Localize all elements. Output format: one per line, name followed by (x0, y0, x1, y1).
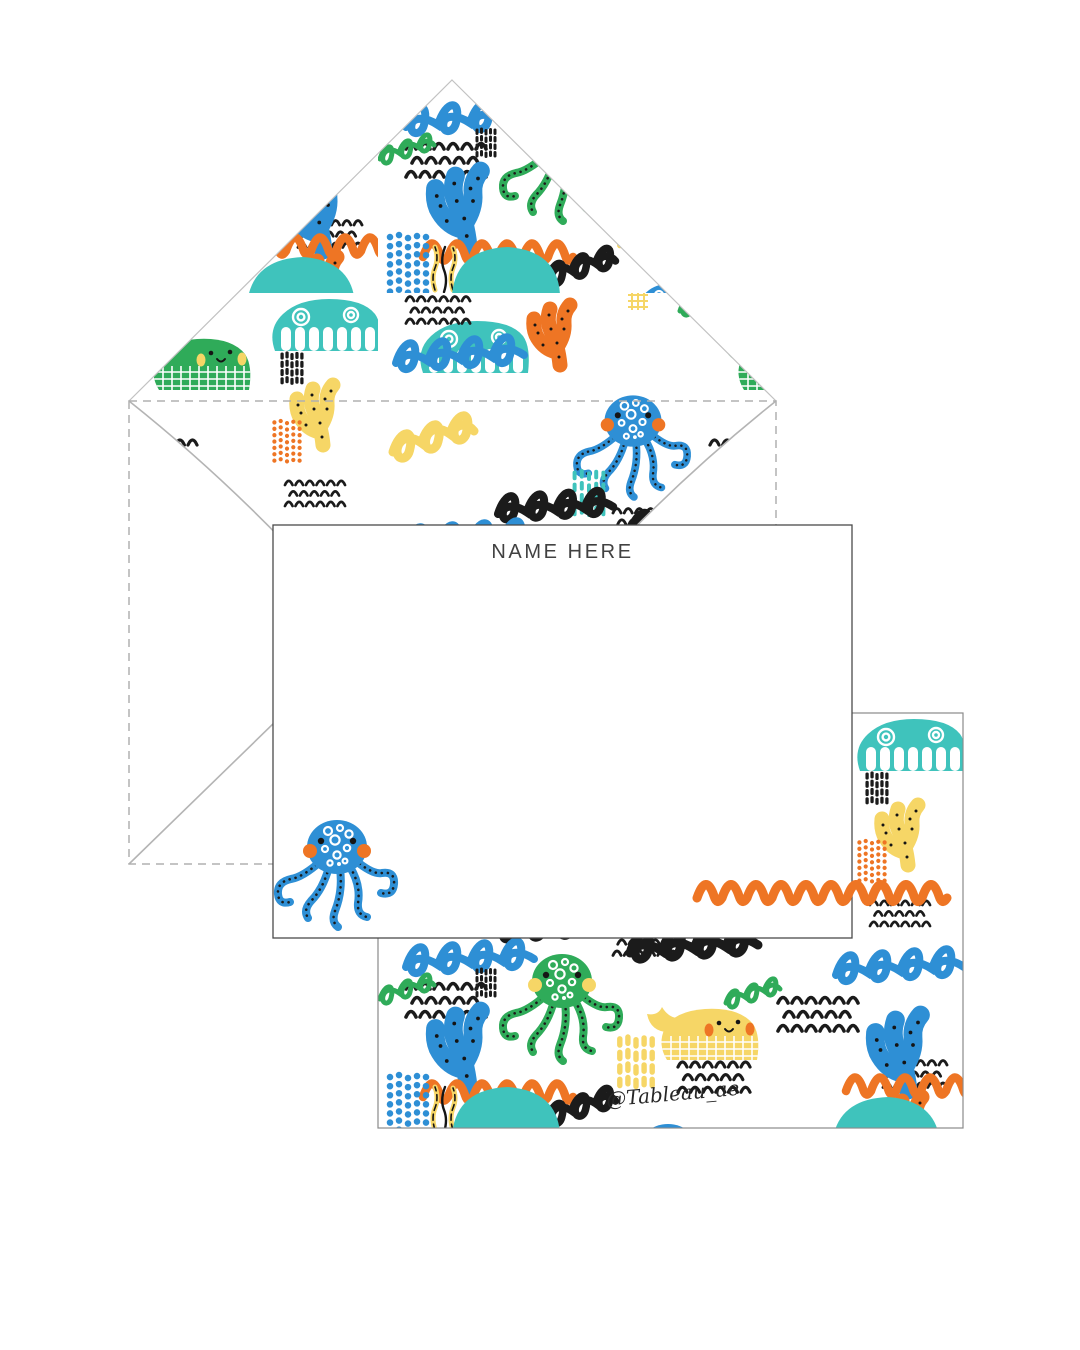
card-title: NAME HERE (273, 541, 852, 564)
front-card (273, 525, 852, 938)
front-card-base (273, 525, 852, 938)
artwork-canvas (0, 0, 1080, 1350)
stationery-mockup: NAME HERE @Tableau_ae (0, 0, 1080, 1350)
